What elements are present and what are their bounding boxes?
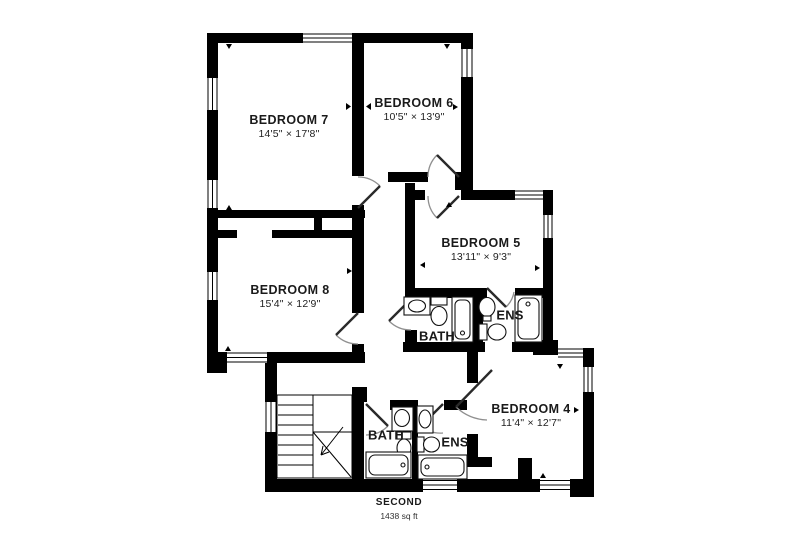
sink-icon — [417, 406, 433, 433]
room-label-bedroom4: BEDROOM 4 — [491, 403, 570, 416]
room-label-ens-lower: ENS — [441, 436, 468, 449]
fixtures-layer — [366, 295, 542, 479]
floorplan-drawing — [0, 0, 800, 533]
room-label-ens-upper: ENS — [496, 309, 523, 322]
room-dims-bedroom4: 11'4" × 12'7" — [501, 418, 561, 429]
toilet-icon — [431, 297, 447, 326]
door-bedroom5 — [428, 196, 459, 218]
floor-title: SECOND — [376, 498, 422, 508]
room-label-bedroom8: BEDROOM 8 — [250, 284, 329, 297]
floorplan-second-floor: BEDROOM 7 14'5" × 17'8" BEDROOM 6 10'5" … — [0, 0, 800, 533]
floor-area: 1438 sq ft — [380, 512, 417, 521]
room-label-bedroom7: BEDROOM 7 — [249, 114, 328, 127]
room-label-bath-upper: BATH — [419, 330, 455, 343]
room-dims-bedroom7: 14'5" × 17'8" — [258, 129, 319, 140]
room-dims-bedroom6: 10'5" × 13'9" — [383, 112, 444, 123]
door-bedroom7 — [358, 177, 380, 208]
room-dims-bedroom8: 15'4" × 12'9" — [259, 299, 320, 310]
bathtub-icon — [452, 297, 473, 342]
stairs-icon — [277, 395, 352, 478]
toilet-icon — [479, 324, 506, 340]
toilet-icon — [417, 437, 440, 452]
door-bedroom8 — [336, 313, 358, 344]
bathtub-icon — [366, 452, 411, 478]
room-label-bedroom5: BEDROOM 5 — [441, 237, 520, 250]
room-label-bedroom6: BEDROOM 6 — [374, 97, 453, 110]
door-bedroom6 — [428, 155, 459, 177]
room-label-bath-lower: BATH — [368, 429, 404, 442]
sink-icon — [404, 297, 430, 315]
room-dims-bedroom5: 13'11" × 9'3" — [451, 252, 511, 263]
bathtub-icon — [418, 455, 467, 479]
